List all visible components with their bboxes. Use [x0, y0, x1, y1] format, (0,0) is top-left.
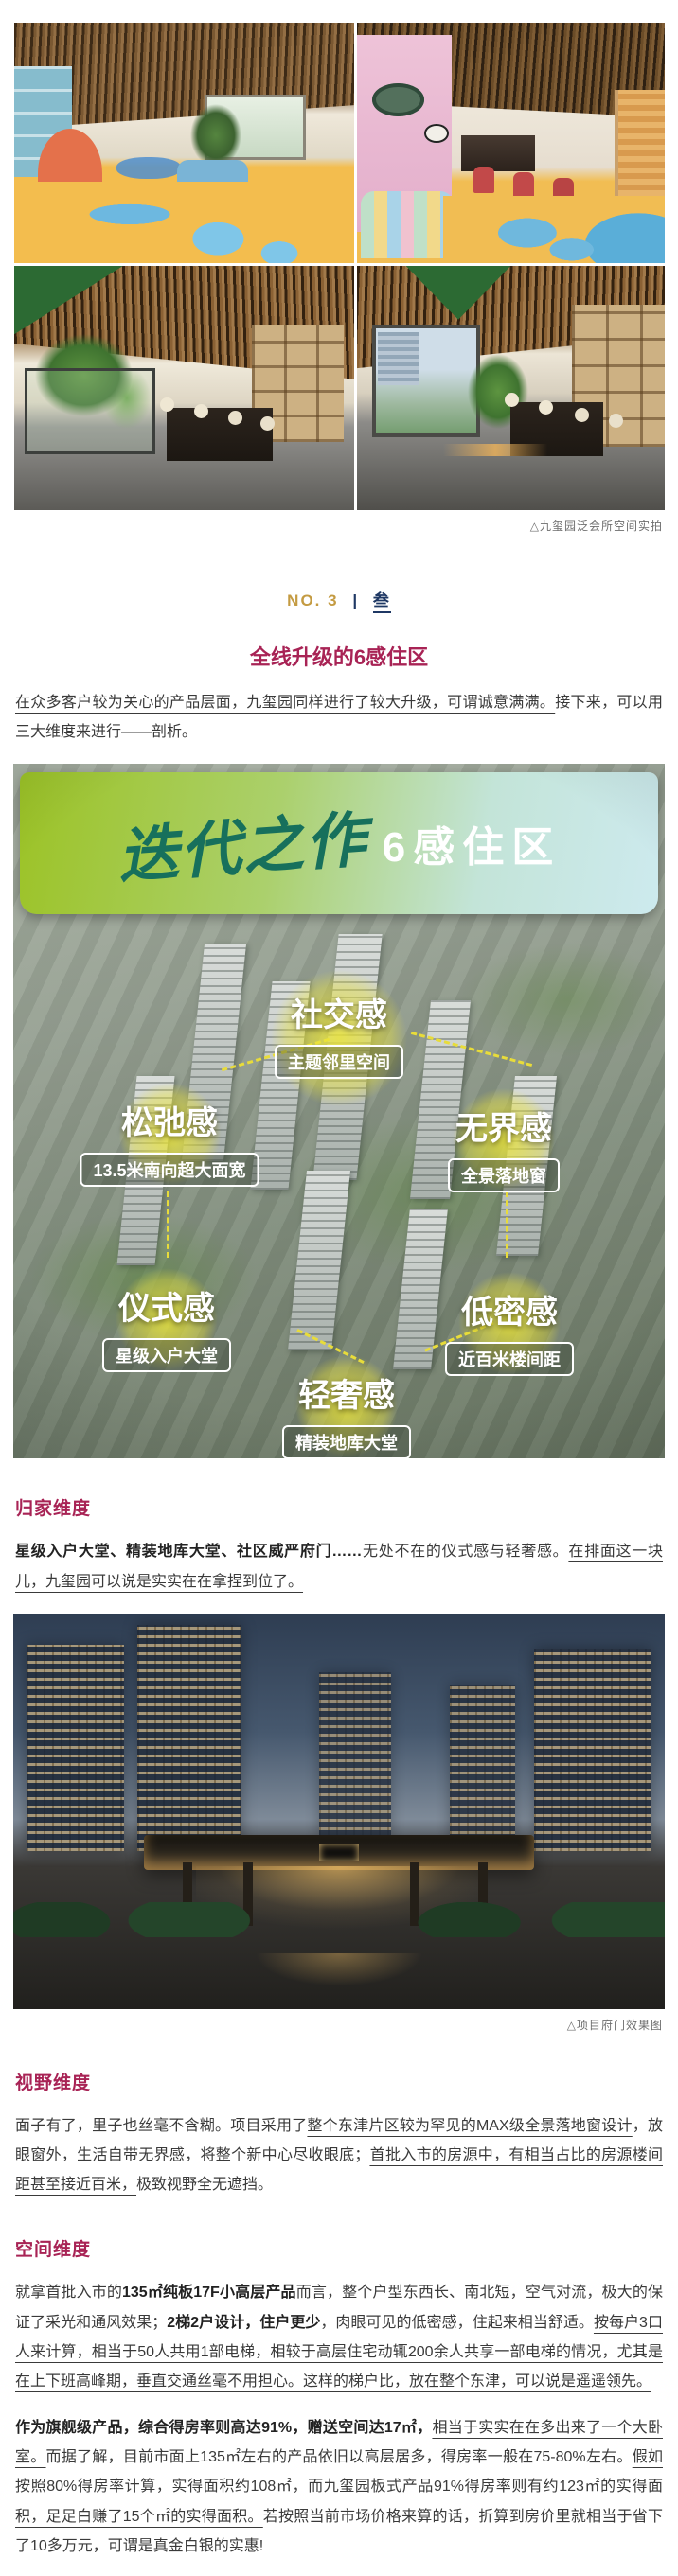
text-run: 而言，	[296, 2285, 342, 2301]
section-no-label: NO. 3	[287, 591, 338, 609]
entrance-sign	[319, 1844, 358, 1861]
feature-subtitle: 精装地库大堂	[282, 1425, 411, 1458]
calligraphy-title: 迭代之作	[115, 791, 370, 895]
text-run: 135㎡纯板17F小高层产品	[122, 2285, 296, 2301]
section-heading-home: 归家维度	[15, 1494, 663, 1520]
promo-aerial-image[interactable]: 迭代之作 6感住区 社交感 主题邻里空间 松弛感 13.5米南向超大面宽 无界感…	[13, 764, 665, 1458]
project-gate-image[interactable]	[13, 1614, 665, 2009]
section-number-header: NO. 3 | 叁	[0, 587, 678, 610]
photo-kids-playroom[interactable]	[14, 23, 354, 263]
feature-label-boundless: 无界感 全景落地窗	[448, 1103, 560, 1192]
residential-tower	[27, 1645, 124, 1850]
feature-label-low-density: 低密感 近百米楼间距	[445, 1286, 574, 1376]
clubhouse-photo-collage	[14, 23, 665, 510]
photo-lounge-right[interactable]	[357, 266, 665, 510]
paragraph: 面子有了，里子也丝毫不含糊。项目采用了整个东津片区较为罕见的MAX级全景落地窗设…	[15, 2111, 663, 2200]
paragraph: 作为旗舰级产品，综合得房率则高达91%，赠送空间达17㎡，相当于实实在在多出来了…	[15, 2413, 663, 2561]
intro-paragraph: 在众多客户较为关心的产品层面，九玺园同样进行了较大升级，可谓诚意满满。接下来，可…	[15, 688, 663, 747]
feature-title: 社交感	[275, 989, 403, 1035]
feature-title: 松弛感	[80, 1097, 259, 1143]
tower	[288, 1171, 350, 1350]
section-heading-view: 视野维度	[15, 2069, 663, 2094]
gallery-caption: △九玺园泛会所空间实拍	[15, 518, 663, 534]
text-run: 星级入户大堂、精装地库大堂、社区威严府门……	[15, 1544, 362, 1560]
yellow-floor	[443, 196, 665, 263]
climbing-wall	[615, 90, 665, 196]
feature-title: 无界感	[448, 1103, 560, 1149]
residential-tower	[137, 1625, 241, 1850]
bar-stools	[473, 167, 494, 193]
feature-label-relax: 松弛感 13.5米南向超大面宽	[80, 1097, 259, 1187]
round-badge	[424, 124, 449, 143]
paragraph: 就拿首批入市的135㎡纯板17F小高层产品而言，整个户型东西长、南北短，空气对流…	[15, 2278, 663, 2396]
residential-tower	[450, 1685, 515, 1843]
feature-label-light-luxury: 轻奢感 精装地库大堂	[282, 1369, 411, 1458]
text-run: 在众多客户较为关心的产品层面，九玺园同样进行了较大升级，可谓诚意满满。	[15, 695, 555, 711]
glass-balustrade	[25, 368, 156, 454]
bar-counter	[461, 135, 535, 171]
yellow-floor	[14, 182, 354, 263]
text-run: 整个东津片区较为罕见的MAX级全景落地窗设计	[307, 2118, 632, 2134]
reading-table	[167, 408, 272, 462]
text-run: 2梯2户设计，住户更少	[167, 2315, 320, 2331]
section-no-chinese: 叁	[373, 591, 391, 613]
section-subtitle: 全线升级的6感住区	[0, 641, 678, 671]
zebra-badge	[372, 83, 424, 117]
text-run: ，肉眼可见的低密感，住起来相当舒适。	[320, 2315, 594, 2331]
feature-title: 低密感	[445, 1286, 574, 1332]
section-no-separator: |	[352, 591, 359, 609]
pastel-fence	[361, 191, 454, 258]
feature-subtitle: 主题邻里空间	[275, 1045, 403, 1079]
section-heading-space: 空间维度	[15, 2235, 663, 2261]
feature-label-ritual: 仪式感 星级入户大堂	[102, 1282, 231, 1372]
photo-kids-bar-area[interactable]	[357, 23, 665, 263]
chairs	[505, 393, 519, 407]
text-run: 就拿首批入市的	[15, 2285, 122, 2301]
building-view	[378, 332, 418, 386]
ground-reflection	[228, 1953, 450, 1997]
text-run: 整个户型东西长、南北短，空气对流，	[342, 2285, 601, 2301]
step-light	[443, 444, 548, 456]
feature-subtitle: 近百米楼间距	[445, 1342, 574, 1376]
text-run: 作为旗舰级产品，综合得房率则高达91%，赠送空间达17㎡，	[15, 2420, 432, 2436]
promo-banner: 迭代之作 6感住区	[20, 772, 658, 914]
feature-title: 轻奢感	[282, 1369, 411, 1416]
feature-label-social: 社交感 主题邻里空间	[275, 989, 403, 1079]
banner-suffix-title: 6感住区	[383, 813, 561, 873]
gate-image-caption: △项目府门效果图	[15, 2017, 663, 2033]
text-run: 无处不在的仪式感与轻奢感。	[362, 1544, 568, 1560]
residential-tower	[534, 1649, 651, 1850]
residential-tower	[319, 1672, 391, 1839]
feature-subtitle: 全景落地窗	[448, 1158, 560, 1192]
text-run: 面子有了，里子也丝毫不含糊。项目采用了	[15, 2118, 307, 2134]
text-run: 极致视野全无遮挡。	[136, 2177, 273, 2193]
article-page: △九玺园泛会所空间实拍 NO. 3 | 叁 全线升级的6感住区 在众多客户较为关…	[0, 0, 678, 2576]
play-mat	[116, 157, 181, 179]
text-run: 而据了解，目前市面上135㎡左右的产品依旧以高层居多，得房率一般在75-80%左…	[46, 2449, 633, 2465]
photo-lounge-left[interactable]	[14, 266, 354, 510]
paragraph: 星级入户大堂、精装地库大堂、社区威严府门……无处不在的仪式感与轻奢感。在排面这一…	[15, 1537, 663, 1596]
feature-subtitle: 13.5米南向超大面宽	[80, 1153, 259, 1187]
hedges	[13, 1902, 665, 1938]
bottom-padding	[0, 2561, 678, 2576]
feature-subtitle: 星级入户大堂	[102, 1338, 231, 1372]
feature-title: 仪式感	[102, 1282, 231, 1329]
